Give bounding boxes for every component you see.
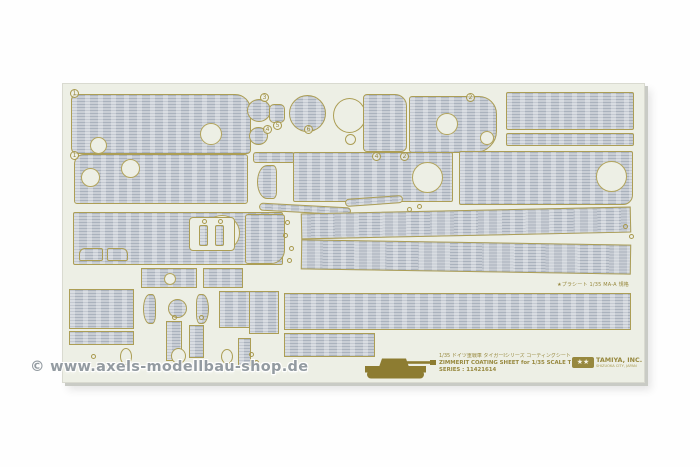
tiger-tank-silhouette-icon — [363, 354, 437, 383]
hull-strip-taper-2 — [301, 239, 631, 274]
numbered-marker: 2 — [400, 152, 409, 161]
disc-bottom — [168, 299, 187, 318]
product-photo: 134562142 ★プラシート 1/35 MA-A 規格 1/35 ドイツ重戦… — [0, 0, 700, 467]
strip-top-right — [506, 133, 634, 146]
panel-row3-mid — [245, 214, 285, 264]
numbered-marker: 1 — [70, 151, 79, 160]
numbered-marker: 6 — [304, 125, 313, 134]
crescent-left — [143, 294, 156, 324]
shop-watermark: © www.axels-modellbau-shop.de — [30, 359, 308, 375]
registration-dot — [283, 233, 288, 238]
cutout-hole — [81, 168, 100, 187]
panel-mid-small-a — [141, 268, 197, 288]
slot-bar-b — [215, 225, 224, 246]
strip-bottom-left — [69, 331, 134, 345]
tamiya-logo: ★★ TAMIYA, INC. SHIZUOKA CITY, JAPAN — [572, 357, 642, 369]
registration-dot — [202, 219, 207, 224]
panel-row2-right — [459, 151, 633, 205]
registration-dot — [287, 258, 292, 263]
cutout-hole — [480, 131, 494, 145]
registration-dot — [407, 207, 412, 212]
cutout-hole — [164, 273, 176, 285]
numbered-marker: 4 — [263, 125, 272, 134]
footer-japanese-line: 1/35 ドイツ重戦車 タイガーⅠシリーズ コーティングシートセット — [439, 353, 571, 360]
registration-dot — [623, 224, 628, 229]
numbered-marker: 5 — [273, 121, 282, 130]
registration-dot — [417, 204, 422, 209]
bar-vertical-b — [189, 325, 204, 358]
hull-strip-taper-1 — [301, 207, 631, 240]
cutout-hole — [412, 162, 443, 193]
numbered-marker: 3 — [260, 93, 269, 102]
panel-top-mid — [363, 94, 407, 152]
registration-dot — [289, 246, 294, 251]
panel-fender-top-left — [71, 94, 251, 154]
registration-dot — [199, 315, 204, 320]
numbered-marker: 2 — [466, 93, 475, 102]
hull-strip-wide — [284, 293, 631, 330]
sheet-footer-print: 1/35 ドイツ重戦車 タイガーⅠシリーズ コーティングシートセット ZIMME… — [363, 352, 638, 380]
panel-top-right-wide — [506, 92, 634, 130]
numbered-marker: 1 — [70, 89, 79, 98]
ring-template-small — [345, 134, 356, 145]
footer-english-line: ZIMMERIT COATING SHEET for 1/35 SCALE TI… — [439, 360, 571, 367]
cutout-hole — [121, 159, 140, 178]
footer-text-block: 1/35 ドイツ重戦車 タイガーⅠシリーズ コーティングシートセット ZIMME… — [439, 353, 571, 374]
bracket-strip — [253, 152, 295, 163]
block-bottom-a — [219, 291, 250, 328]
bracket-a — [79, 248, 103, 261]
block-bottom-b — [249, 291, 279, 334]
zimmerit-coating-sheet: 134562142 ★プラシート 1/35 MA-A 規格 1/35 ドイツ重戦… — [62, 83, 645, 383]
footer-series-line: SERIES : 11421614 — [439, 367, 571, 374]
registration-dot — [218, 219, 223, 224]
sheet-spec-note: ★プラシート 1/35 MA-A 規格 — [469, 281, 629, 288]
registration-dot — [172, 315, 177, 320]
registration-dot — [629, 234, 634, 239]
tamiya-twin-star-icon: ★★ — [572, 357, 594, 368]
panel-top-holes — [409, 96, 497, 153]
bracket-b — [107, 248, 128, 261]
cutout-hole — [596, 161, 627, 192]
tamiya-logo-name: TAMIYA, INC. — [596, 357, 642, 364]
cutout-hole — [90, 137, 107, 154]
panel-bottom-left — [69, 289, 134, 329]
slot-bar-a — [199, 225, 208, 246]
slot-plate — [189, 217, 235, 251]
numbered-marker: 4 — [372, 152, 381, 161]
panel-row2-left — [74, 154, 248, 204]
panel-mid-small-b — [203, 268, 243, 288]
curved-piece — [257, 165, 277, 199]
cutout-hole — [436, 113, 458, 135]
registration-dot — [285, 220, 290, 225]
zimmerit-pieces-layer: 134562142 — [63, 84, 644, 382]
hull-strip-short — [284, 333, 375, 357]
registration-dot — [249, 352, 254, 357]
ring-template — [333, 98, 366, 133]
disc-small-a — [247, 99, 271, 122]
cutout-hole — [200, 123, 222, 145]
tamiya-logo-subtext: SHIZUOKA CITY, JAPAN — [596, 364, 642, 369]
